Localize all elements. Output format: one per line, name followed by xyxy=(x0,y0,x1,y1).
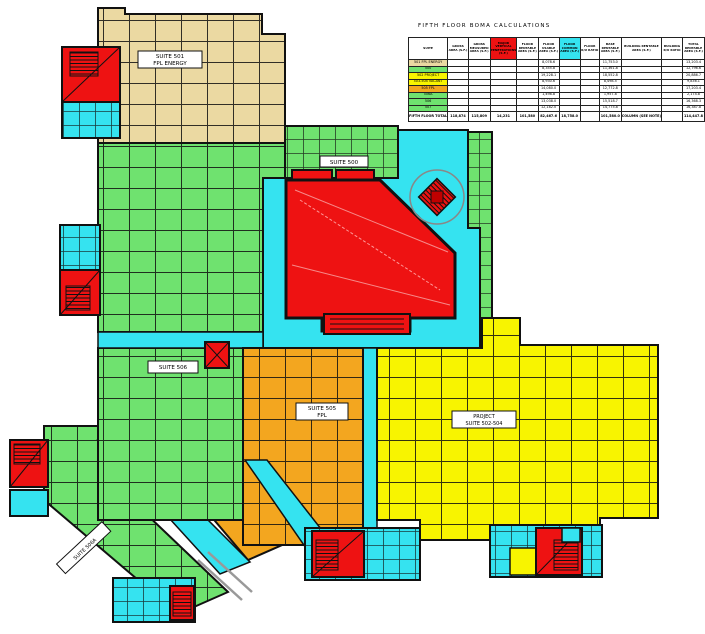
service-room-northwest-walls xyxy=(62,102,120,138)
table-title: FIFTH FLOOR BOMA CALCULATIONS xyxy=(418,23,550,29)
column-header: TOTAL RENTABLE AREA (S.F.) xyxy=(682,38,704,60)
column-header: BUILDING R/U RATIO xyxy=(662,38,683,60)
column-header: FLOOR R/U RATIO xyxy=(580,38,599,60)
service-room-west-walls xyxy=(60,225,100,270)
boma-table-body: 501 FPL ENERGY8,078.611,753.013,203.4500… xyxy=(409,60,705,122)
suite-cell: FIFTH FLOOR TOTAL xyxy=(409,112,448,122)
column-header: BASE RENTABLE AREA (S.F.) xyxy=(599,38,621,60)
suite-501-label: SUITE 501 FPL ENERGY xyxy=(138,51,202,68)
svg-text:SUITE 501: SUITE 501 xyxy=(156,54,184,60)
spiral-stair-center xyxy=(431,191,443,203)
svg-text:SUITE 502-504: SUITE 502-504 xyxy=(465,421,502,427)
corridor-west xyxy=(98,332,263,348)
column-header: SUITE xyxy=(409,38,448,60)
stair-treads-west xyxy=(66,286,90,310)
value-cell: 114,447.8 xyxy=(682,112,704,122)
column-header: BUILDING RENTABLE AREA (S.F.) xyxy=(621,38,661,60)
corridor-south xyxy=(363,348,377,530)
suite-500-top-rooms xyxy=(270,126,398,178)
value-cell: 101,580.0 xyxy=(599,112,621,122)
stair-treads-south-left xyxy=(173,592,191,616)
value-cell xyxy=(580,112,599,122)
column-header: FLOOR RENTABLE AREA (S.F.) xyxy=(517,38,538,60)
column-header: MAJOR VERTICAL PENETRATIONS (S.F.) xyxy=(490,38,517,60)
value-cell: 18,758.0 xyxy=(559,112,580,122)
value-cell: 101,580 xyxy=(517,112,538,122)
svg-text:SUITE 500: SUITE 500 xyxy=(330,160,359,166)
value-cell: 82,467.6 xyxy=(538,112,559,122)
value-cell: 118,874 xyxy=(448,112,469,122)
service-room-southwest xyxy=(10,490,48,516)
svg-text:FPL ENERGY: FPL ENERGY xyxy=(153,61,187,67)
stair-treads-south-center xyxy=(316,540,338,570)
suite-502-504-rooms xyxy=(377,318,658,540)
svg-text:SUITE 505: SUITE 505 xyxy=(308,406,337,412)
value-cell: 14,231 xyxy=(490,112,517,122)
service-room-southeast-small xyxy=(562,528,580,542)
suite-500-label: SUITE 500 xyxy=(320,156,368,167)
table-row: FIFTH FLOOR TOTAL118,874115,80914,231101… xyxy=(409,112,705,122)
column-header: FLOOR USABLE AREA (S.F.) xyxy=(538,38,559,60)
boma-table: SUITEGROSS AREA (S.F.)GROSS MEASURED ARE… xyxy=(408,37,705,122)
boma-table-header: SUITEGROSS AREA (S.F.)GROSS MEASURED ARE… xyxy=(409,38,705,60)
column-header: GROSS MEASURED AREA (S.F.) xyxy=(468,38,490,60)
svg-text:PROJECT: PROJECT xyxy=(473,414,496,420)
suite-502-504-label: PROJECT SUITE 502-504 xyxy=(452,411,516,428)
svg-text:SUITE 506: SUITE 506 xyxy=(159,365,188,371)
suite-505-label: SUITE 505 FPL xyxy=(296,403,348,420)
value-cell: 115,809 xyxy=(468,112,490,122)
suite-506-label: SUITE 506 xyxy=(148,361,198,373)
service-room-southeast xyxy=(510,548,536,575)
value-cell: COLUMN (SEE NOTE) xyxy=(621,112,661,122)
suite-506-rooms xyxy=(98,348,245,520)
floor-plan-sheet: SUITE 501 FPL ENERGY SUITE 500 SUITE 506… xyxy=(0,0,705,634)
suite-501-rooms xyxy=(98,8,285,143)
value-cell xyxy=(662,112,683,122)
column-header: GROSS AREA (S.F.) xyxy=(448,38,469,60)
suite-500-rooms xyxy=(98,143,285,332)
svg-text:FPL: FPL xyxy=(317,413,327,419)
column-header: FLOOR COMMON AREA (S.F.) xyxy=(559,38,580,60)
